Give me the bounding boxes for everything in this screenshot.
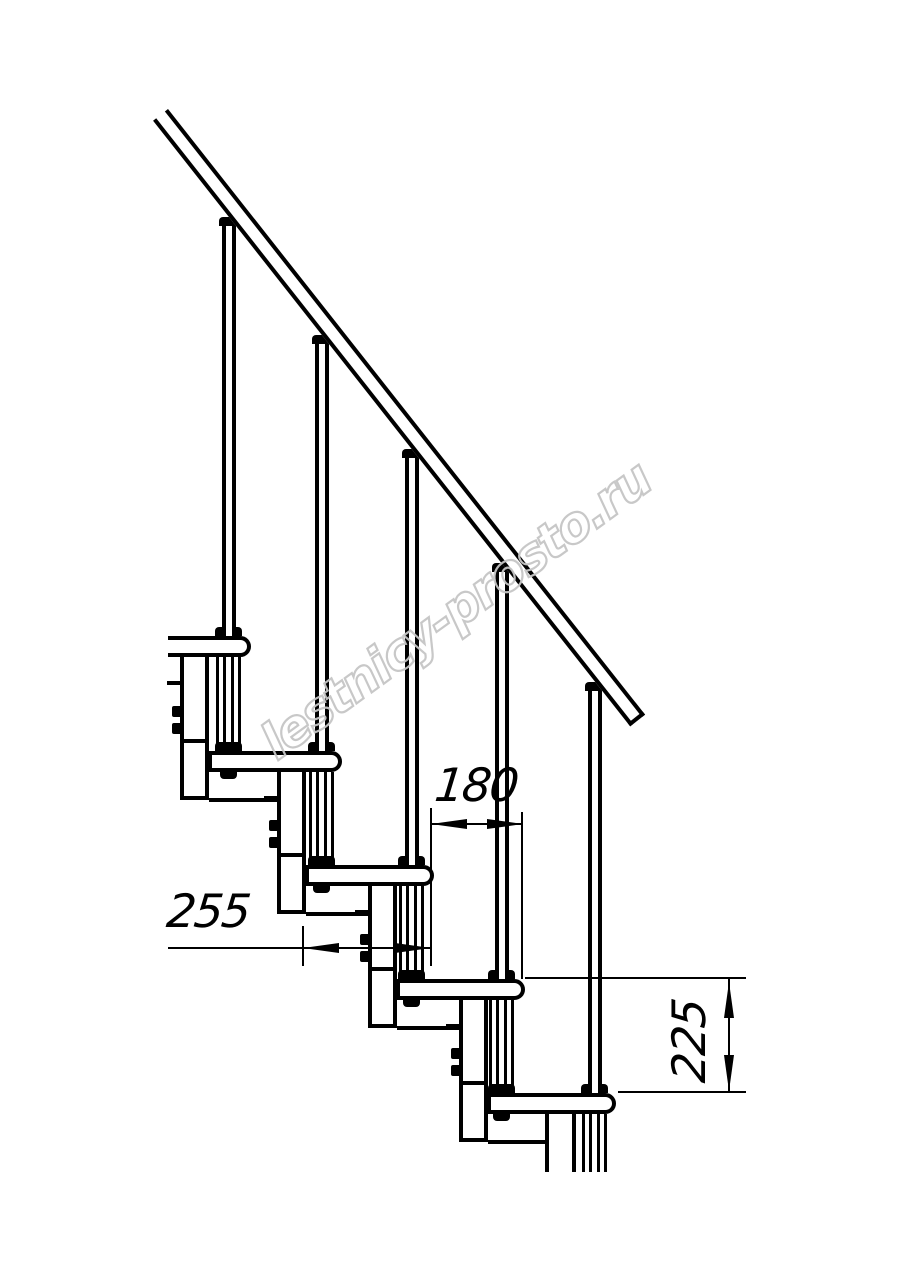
support-column [368,886,397,967]
connecting-rod [496,1000,507,1093]
rod-collar [488,1084,515,1093]
dim-arrow-right-icon [487,819,523,829]
column-flange [446,1024,459,1028]
support-column [459,1081,488,1142]
tread [168,636,251,657]
connecting-rod [223,657,234,751]
dimension-line [168,947,432,949]
support-column [277,772,306,853]
column-bolt [269,837,278,848]
extension-line [525,977,746,979]
tread [487,1093,616,1114]
tread [305,865,434,886]
rod-collar [308,856,335,865]
support-column [277,853,306,914]
column-flange [167,681,180,685]
column-bolt [269,820,278,831]
support-column [459,1000,488,1081]
baluster-rod [588,690,602,1093]
extension-line [521,812,523,979]
column-bolt [360,951,369,962]
column-base-line [488,1140,545,1144]
extension-line [618,1091,746,1093]
column-bolt [360,934,369,945]
column-flange [264,796,277,800]
dim-arrow-left-icon [303,943,339,953]
column-bolt [172,723,181,734]
connecting-rod [316,772,327,865]
dim-arrow-left-icon [431,819,467,829]
staircase-drawing: 180 255 225 lestnicy-prosto.ru [0,0,914,1280]
support-column [545,1114,576,1172]
column-bolt [451,1048,460,1059]
rod-nut [403,1000,420,1007]
dimension-label: 255 [155,884,261,938]
tread [396,979,525,1000]
rod-nut [220,772,237,779]
support-column [180,657,209,739]
dimension-label: 225 [662,997,716,1084]
dim-arrow-right-icon [395,943,431,953]
dimension-label: 180 [425,758,527,812]
support-column [368,967,397,1028]
rod-collar [398,970,425,979]
baluster-rod [222,225,236,636]
column-bolt [172,706,181,717]
support-column [180,739,209,800]
column-flange [355,910,368,914]
column-bolt [451,1065,460,1076]
rod-nut [493,1114,510,1121]
connecting-rod [589,1114,600,1172]
connecting-rod [406,886,417,979]
rod-collar [215,742,242,751]
rod-nut [313,886,330,893]
